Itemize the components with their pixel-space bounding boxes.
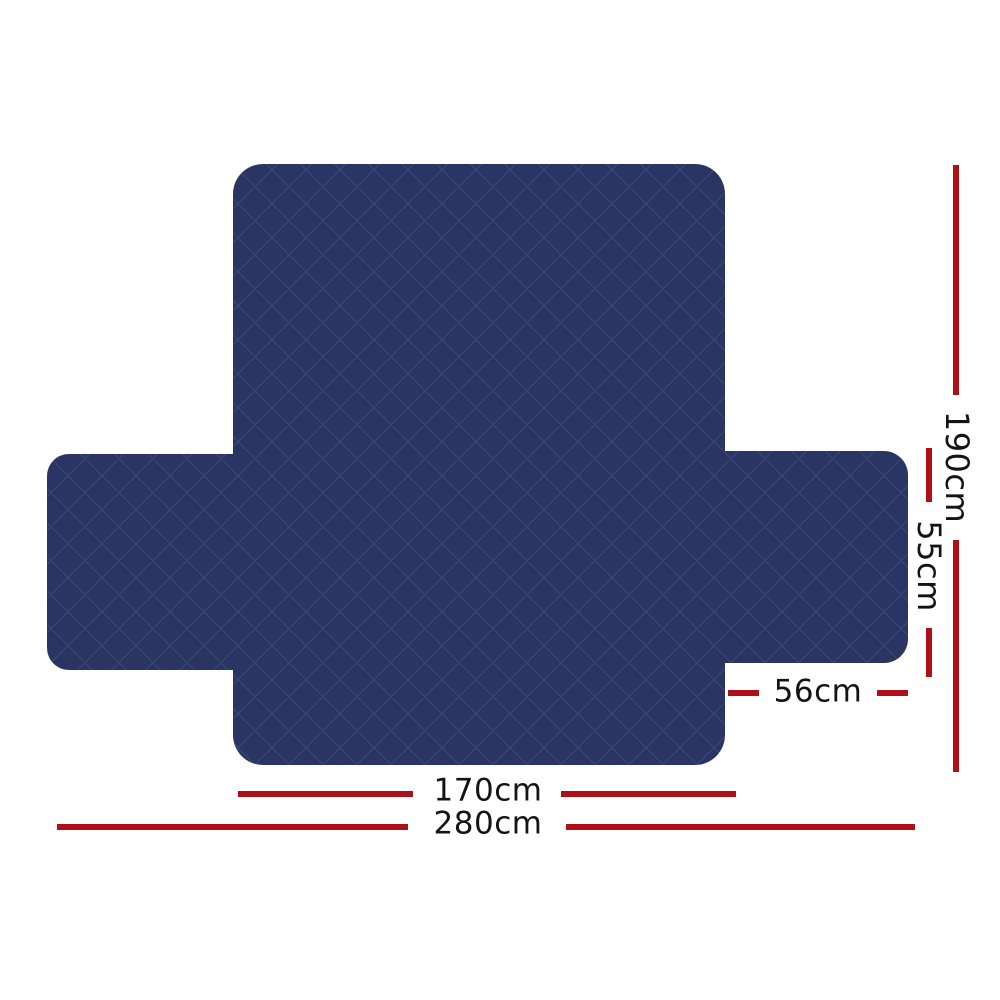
dimension-label-170cm: 170cm: [434, 776, 543, 807]
cover-main-panel: [233, 164, 725, 765]
dimension-label-190cm: 190cm: [941, 411, 973, 523]
sofa-cover-shape: [0, 0, 1000, 1000]
dimension-line-55cm-lower: [926, 628, 932, 677]
dimension-line-56cm-right: [877, 690, 908, 696]
dimension-line-170cm-left: [238, 791, 413, 797]
dimension-line-280cm-right: [566, 824, 915, 830]
dimension-line-56cm-left: [728, 690, 759, 696]
dimension-line-280cm-left: [57, 824, 408, 830]
dimension-line-190cm-lower: [953, 540, 959, 772]
dimension-label-56cm: 56cm: [774, 677, 863, 708]
dimension-line-190cm-upper: [953, 165, 959, 395]
dimension-label-280cm: 280cm: [434, 809, 543, 840]
dimension-line-170cm-right: [561, 791, 736, 797]
dimension-label-55cm: 55cm: [913, 520, 945, 611]
dimension-line-55cm-upper: [926, 448, 932, 502]
product-dimension-diagram: 190cm 55cm 56cm 170cm 280cm: [0, 0, 1000, 1000]
